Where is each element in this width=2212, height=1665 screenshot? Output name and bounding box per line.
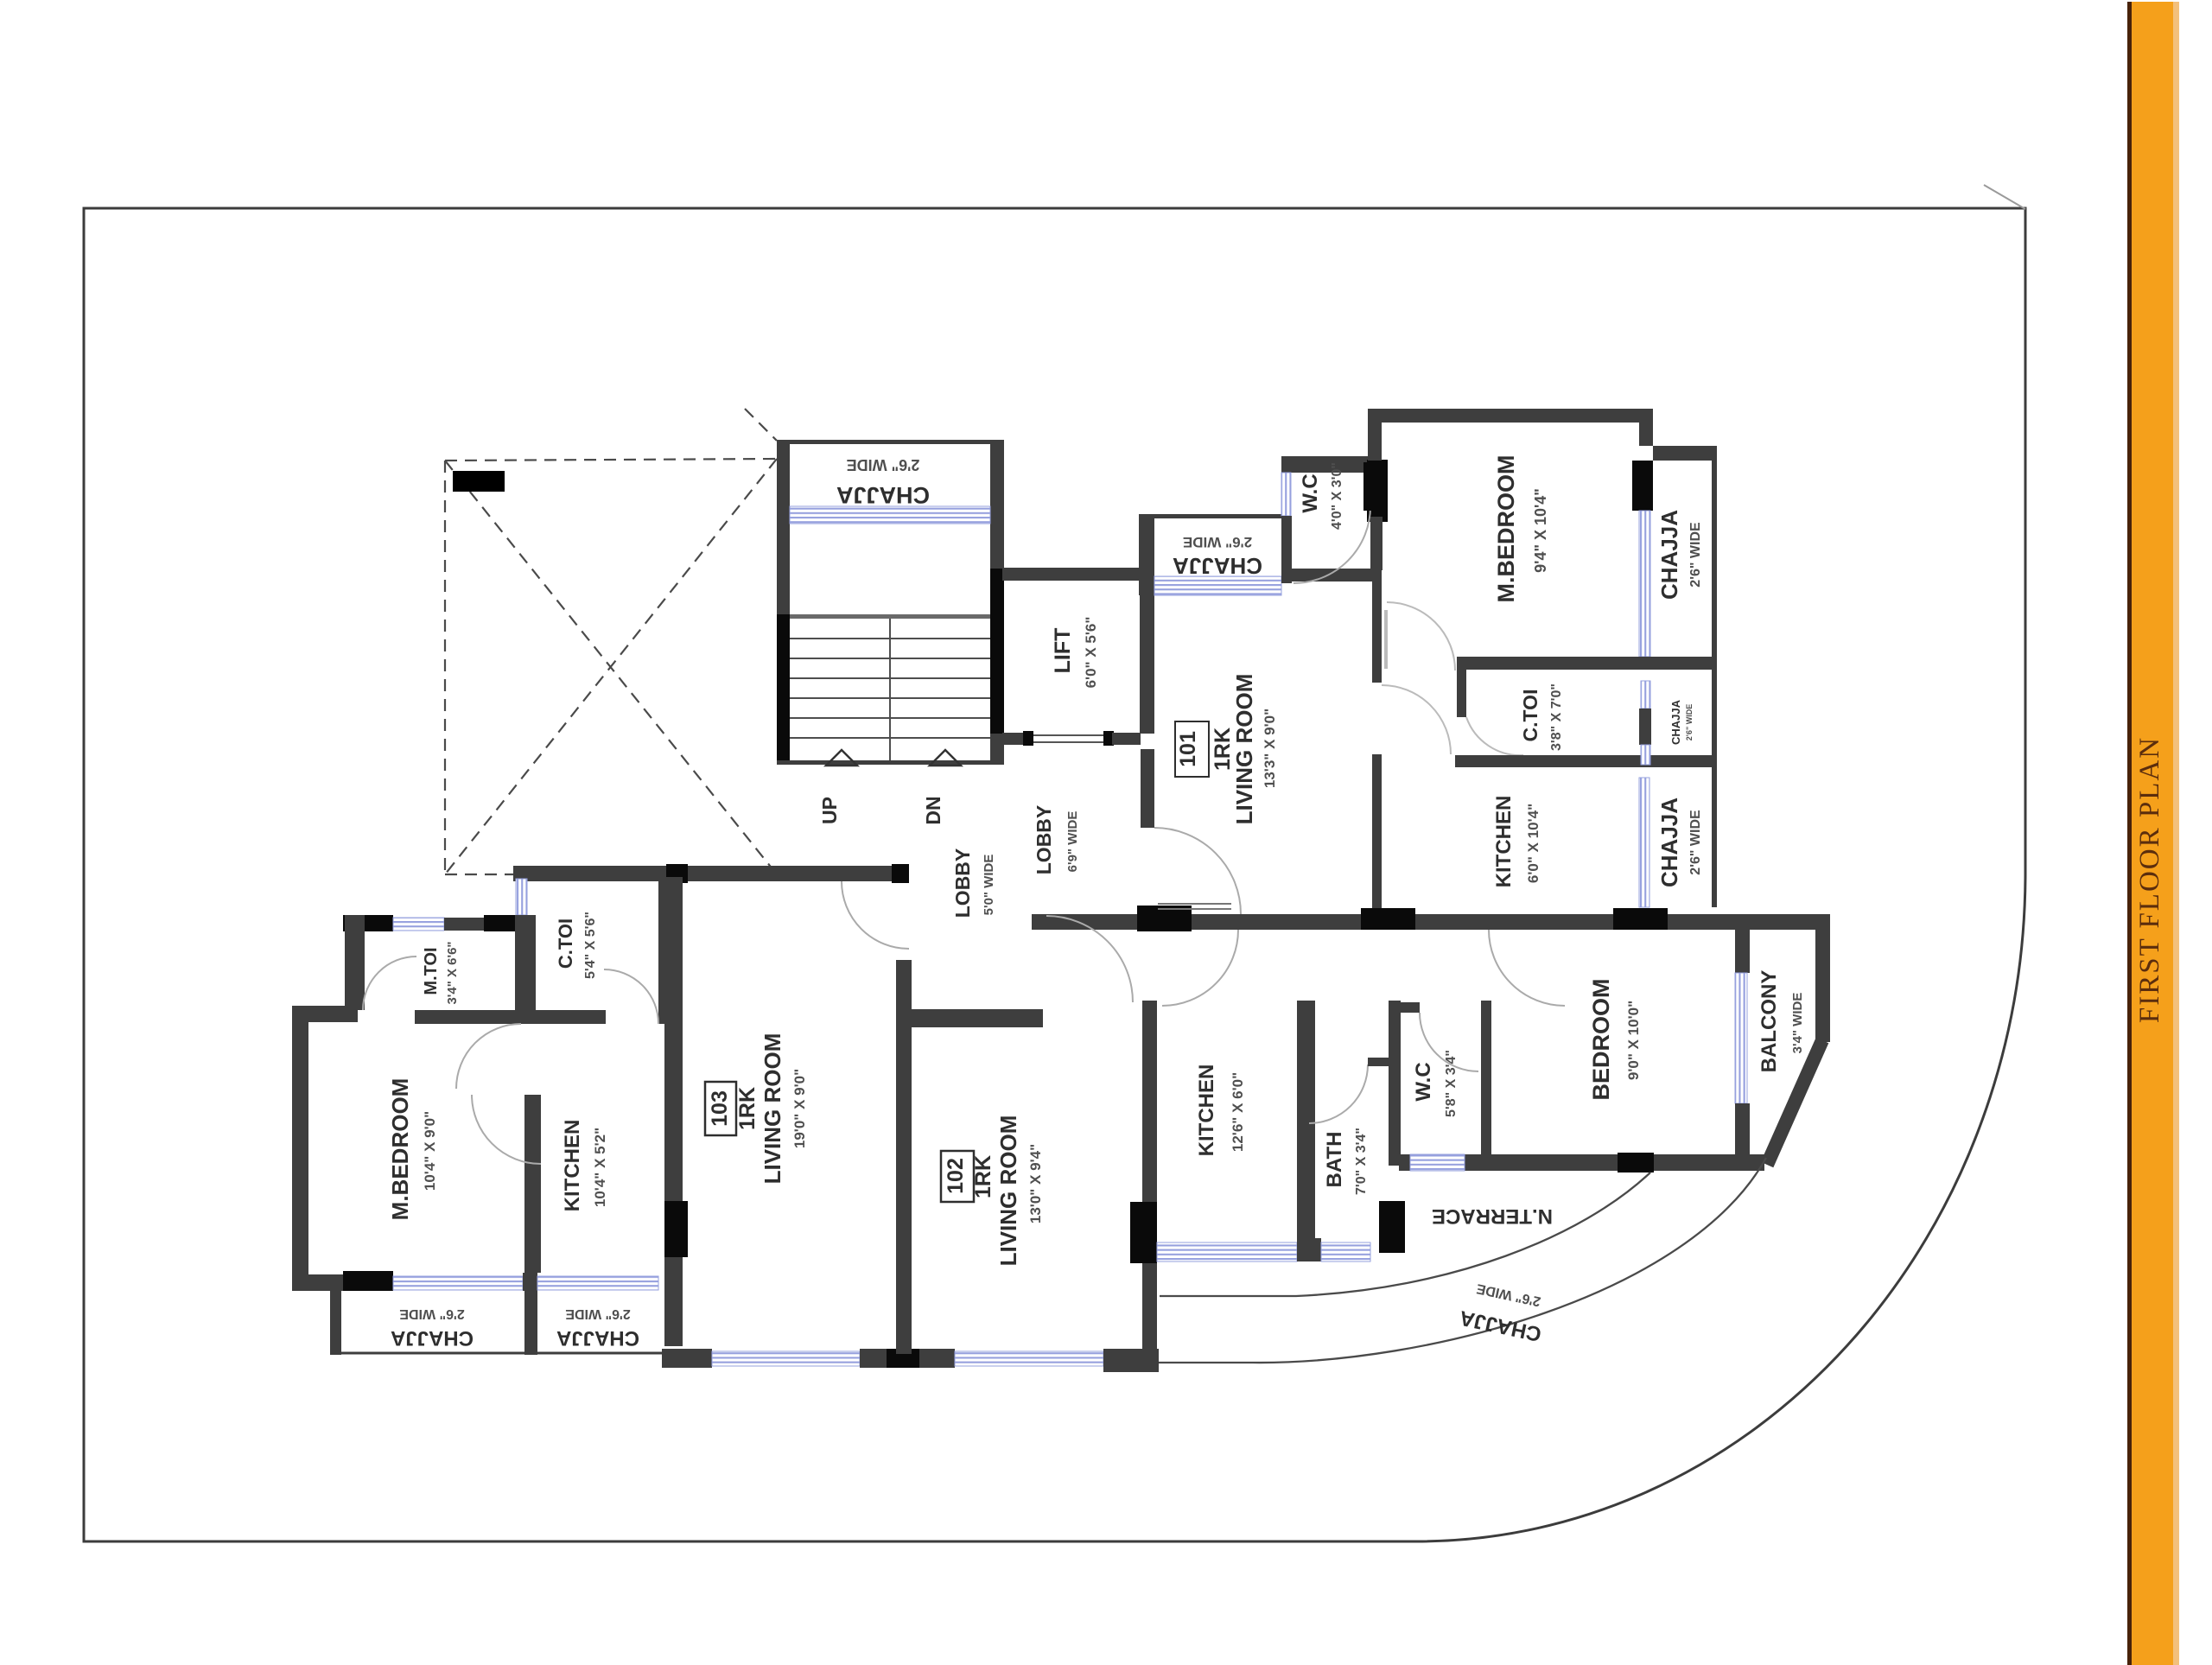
svg-text:10'4" X 5'2": 10'4" X 5'2" <box>592 1128 608 1207</box>
svg-text:5'8" X 3'4": 5'8" X 3'4" <box>1444 1050 1459 1117</box>
svg-text:C.TOI: C.TOI <box>1519 690 1541 742</box>
svg-text:KITCHEN: KITCHEN <box>561 1120 584 1212</box>
svg-text:19'0" X 9'0": 19'0" X 9'0" <box>791 1069 808 1148</box>
svg-text:BATH: BATH <box>1323 1132 1346 1188</box>
svg-text:UP: UP <box>818 797 841 824</box>
svg-text:9'4" X 10'4": 9'4" X 10'4" <box>1532 488 1549 573</box>
svg-text:M.BEDROOM: M.BEDROOM <box>1493 455 1519 603</box>
svg-text:C.TOI: C.TOI <box>555 918 576 969</box>
svg-text:1RK: 1RK <box>971 1155 995 1198</box>
svg-text:KITCHEN: KITCHEN <box>1195 1064 1218 1157</box>
svg-text:W.C: W.C <box>1412 1062 1435 1101</box>
svg-text:2'6" WIDE: 2'6" WIDE <box>1688 810 1703 875</box>
svg-text:2'6" WIDE: 2'6" WIDE <box>847 456 920 473</box>
svg-text:LOBBY: LOBBY <box>1033 805 1055 875</box>
svg-text:3'4" X 6'6": 3'4" X 6'6" <box>445 941 460 1004</box>
svg-text:13'3" X 9'0": 13'3" X 9'0" <box>1262 709 1278 788</box>
svg-text:LOBBY: LOBBY <box>951 848 974 918</box>
svg-text:2'6" WIDE: 2'6" WIDE <box>1685 704 1694 740</box>
svg-text:10'4" X 9'0": 10'4" X 9'0" <box>422 1111 438 1191</box>
svg-text:2'6" WIDE: 2'6" WIDE <box>565 1306 631 1321</box>
svg-text:BEDROOM: BEDROOM <box>1588 979 1614 1101</box>
svg-text:BALCONY: BALCONY <box>1758 970 1781 1073</box>
svg-text:LIFT: LIFT <box>1051 628 1075 674</box>
svg-text:3'8" X 7'0": 3'8" X 7'0" <box>1549 683 1564 751</box>
svg-text:102: 102 <box>944 1158 968 1194</box>
svg-text:13'0" X 9'4": 13'0" X 9'4" <box>1027 1144 1044 1223</box>
svg-text:6'0" X 5'6": 6'0" X 5'6" <box>1083 617 1099 689</box>
svg-text:2'6" WIDE: 2'6" WIDE <box>1688 522 1703 588</box>
svg-text:CHAJJA: CHAJJA <box>391 1326 474 1350</box>
svg-text:LIVING ROOM: LIVING ROOM <box>760 1033 785 1185</box>
svg-text:CHAJJA: CHAJJA <box>1656 510 1682 600</box>
svg-text:2'6" WIDE: 2'6" WIDE <box>399 1306 465 1321</box>
svg-text:CHAJJA: CHAJJA <box>836 482 930 508</box>
svg-text:1RK: 1RK <box>735 1087 760 1130</box>
svg-text:KITCHEN: KITCHEN <box>1492 796 1516 888</box>
svg-text:LIVING ROOM: LIVING ROOM <box>995 1115 1021 1267</box>
svg-text:LIVING ROOM: LIVING ROOM <box>1231 674 1257 825</box>
svg-text:3'4" WIDE: 3'4" WIDE <box>1790 993 1805 1054</box>
svg-text:4'0" X 3'0": 4'0" X 3'0" <box>1330 462 1344 530</box>
svg-text:W.C: W.C <box>1299 473 1322 512</box>
svg-text:2'6" WIDE: 2'6" WIDE <box>1183 534 1252 550</box>
svg-text:CHAJJA: CHAJJA <box>1669 699 1682 745</box>
svg-text:103: 103 <box>708 1090 732 1127</box>
svg-text:CHAJJA: CHAJJA <box>1656 798 1682 887</box>
svg-text:6'0" X 10'4": 6'0" X 10'4" <box>1525 804 1541 883</box>
svg-text:9'0" X 10'0": 9'0" X 10'0" <box>1625 1001 1642 1080</box>
svg-text:5'0" WIDE: 5'0" WIDE <box>982 855 996 916</box>
svg-text:M.TOI: M.TOI <box>422 947 441 995</box>
svg-text:5'4" X 5'6": 5'4" X 5'6" <box>583 912 598 979</box>
svg-text:N.TERRACE: N.TERRACE <box>1432 1204 1553 1228</box>
svg-text:CHAJJA: CHAJJA <box>556 1326 639 1350</box>
svg-text:M.BEDROOM: M.BEDROOM <box>387 1078 413 1221</box>
svg-text:FIRST FLOOR PLAN: FIRST FLOOR PLAN <box>2134 736 2165 1023</box>
svg-text:12'6" X 6'0": 12'6" X 6'0" <box>1230 1072 1246 1152</box>
svg-text:7'0" X 3'4": 7'0" X 3'4" <box>1354 1128 1369 1195</box>
svg-text:6'9" WIDE: 6'9" WIDE <box>1065 811 1080 873</box>
svg-text:101: 101 <box>1176 731 1200 767</box>
svg-text:DN: DN <box>922 796 944 824</box>
svg-text:CHAJJA: CHAJJA <box>1173 553 1262 579</box>
